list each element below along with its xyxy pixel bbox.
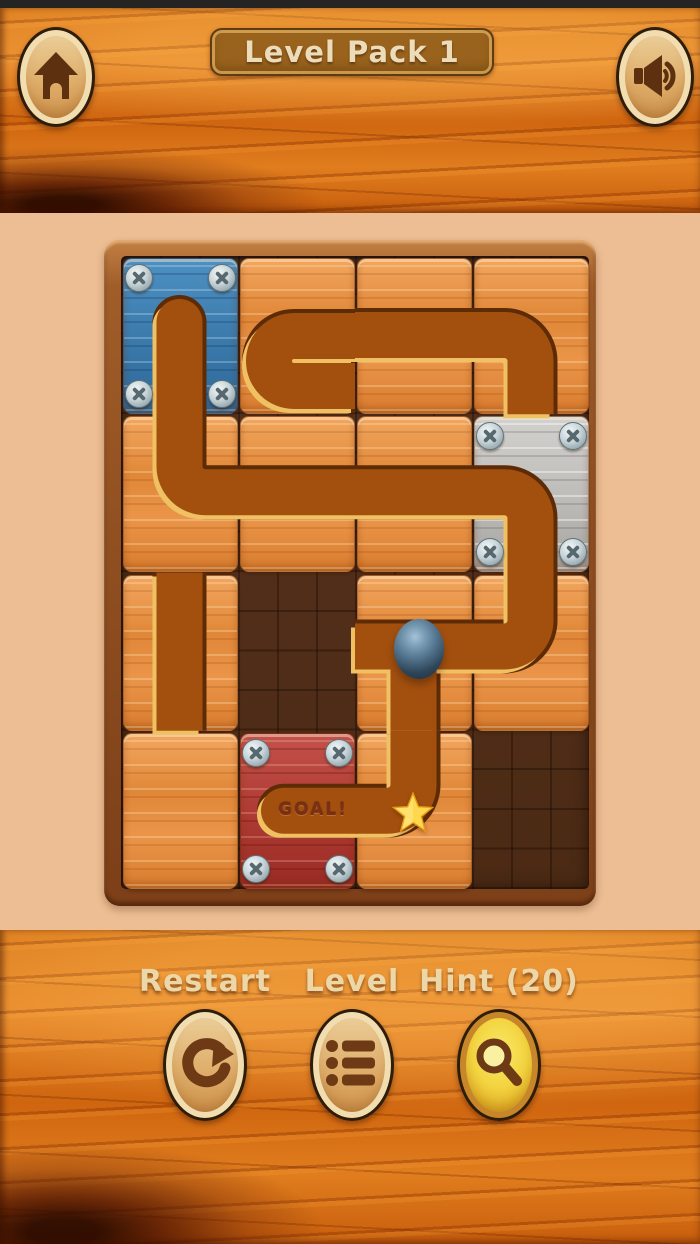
screw-icon bbox=[125, 380, 153, 408]
star-icon bbox=[392, 789, 434, 839]
tile-wood-r2c1[interactable] bbox=[123, 416, 238, 572]
speaker-icon bbox=[631, 50, 679, 104]
screw-icon bbox=[125, 264, 153, 292]
screw-icon bbox=[242, 739, 270, 767]
level-button[interactable] bbox=[310, 1009, 394, 1121]
restart-button[interactable] bbox=[163, 1009, 247, 1121]
hint-label: Hint (20) bbox=[409, 964, 589, 999]
tile-wood-r1c3[interactable] bbox=[357, 258, 472, 414]
sound-button[interactable] bbox=[616, 27, 694, 127]
ball bbox=[394, 619, 444, 679]
tile-wood-r4c1[interactable] bbox=[123, 733, 238, 889]
tile-wood-r3c1[interactable] bbox=[123, 575, 238, 731]
top-bar: Level Pack 1 bbox=[0, 8, 700, 213]
tile-wood-r2c3[interactable] bbox=[357, 416, 472, 572]
goal-text: GOAL! bbox=[268, 800, 358, 820]
home-button[interactable] bbox=[17, 27, 95, 127]
page-title: Level Pack 1 bbox=[244, 35, 460, 69]
tile-wood-r3c4[interactable] bbox=[474, 575, 589, 731]
screw-icon bbox=[208, 380, 236, 408]
screw-icon bbox=[325, 739, 353, 767]
restart-icon bbox=[176, 1034, 234, 1096]
game-screen: Level Pack 1 GOAL! Restart bbox=[0, 0, 700, 1244]
screw-icon bbox=[242, 855, 270, 883]
hint-magnifier-icon bbox=[471, 1035, 527, 1095]
tile-wood-r1c2[interactable] bbox=[240, 258, 355, 414]
home-icon bbox=[32, 49, 80, 105]
screw-icon bbox=[325, 855, 353, 883]
hint-action: Hint (20) bbox=[409, 964, 589, 1121]
status-bar bbox=[0, 0, 700, 8]
puzzle-board: GOAL! bbox=[121, 256, 589, 889]
tile-wood-r2c2[interactable] bbox=[240, 416, 355, 572]
hint-button[interactable] bbox=[457, 1009, 541, 1121]
level-pack-title-plate: Level Pack 1 bbox=[210, 28, 494, 76]
screw-icon bbox=[208, 264, 236, 292]
puzzle-board-frame: GOAL! bbox=[104, 240, 596, 906]
level-list-icon bbox=[325, 1035, 379, 1095]
tile-wood-r1c4[interactable] bbox=[474, 258, 589, 414]
